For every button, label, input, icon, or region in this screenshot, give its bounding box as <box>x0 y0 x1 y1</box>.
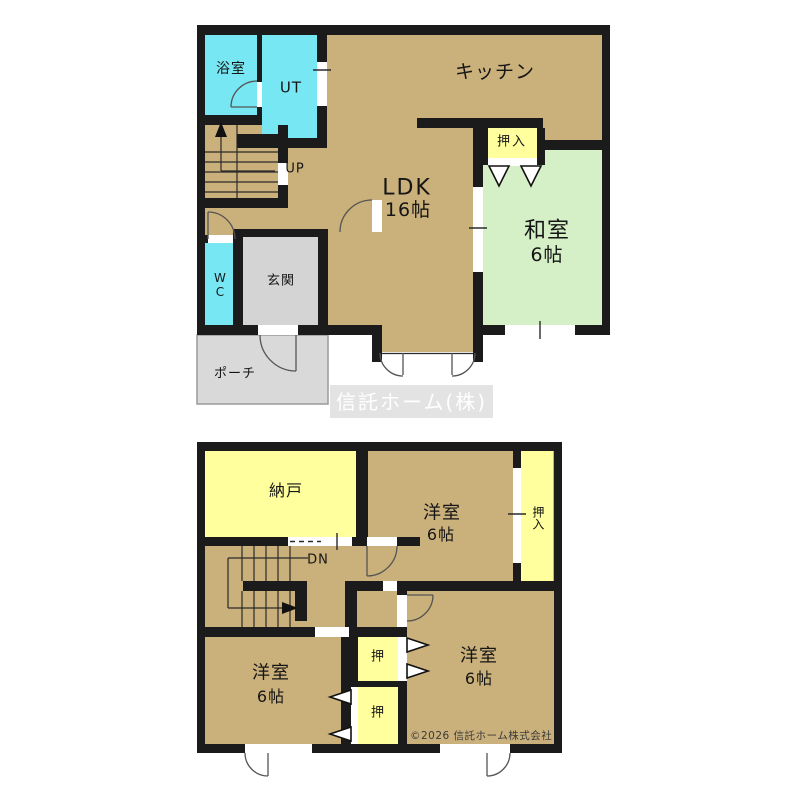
room-label-wc: WC <box>212 271 226 299</box>
room-label-ldk: LDK <box>382 175 432 200</box>
room-label-ldk-size: 16帖 <box>385 200 431 222</box>
room-label-washitsu: 和室 <box>524 218 570 243</box>
room-label-oshiire-f2: 押入 <box>530 506 544 530</box>
room-label-kitchen: キッチン <box>455 62 535 84</box>
watermark: 信託ホーム(株) <box>330 385 493 418</box>
stairs-up-label: UP <box>285 163 304 178</box>
copyright: ©2026 信託ホーム株式会社 <box>410 728 552 743</box>
room-label-yoshitsu-sw: 洋室 <box>252 664 290 685</box>
room-label-yoshitsu-ne: 洋室 <box>423 504 461 525</box>
room-label-porch: ポーチ <box>214 368 256 383</box>
stairs-down-label: DN <box>307 554 329 569</box>
room-label-yoshitsu-se: 洋室 <box>460 647 498 668</box>
room-label-yoshitsu-se-size: 6帖 <box>465 670 493 688</box>
room-label-closet-f1: 押入 <box>497 136 527 151</box>
room-label-washitsu-size: 6帖 <box>530 245 563 267</box>
room-label-yoshitsu-ne-size: 6帖 <box>427 526 455 544</box>
room-label-entrance: 玄関 <box>267 275 295 290</box>
room-label-yoshitsu-sw-size: 6帖 <box>257 688 285 706</box>
floorplan-canvas: 浴室 UT キッチン 押入 和室 6帖 LDK 16帖 UP WC 玄関 ポーチ… <box>0 0 800 800</box>
room-label-utility: UT <box>280 79 302 96</box>
room-label-oshi-1: 押 <box>371 651 385 666</box>
room-label-oshi-2: 押 <box>371 707 385 722</box>
room-label-storage: 納戸 <box>269 482 303 500</box>
room-label-bath: 浴室 <box>216 61 246 77</box>
